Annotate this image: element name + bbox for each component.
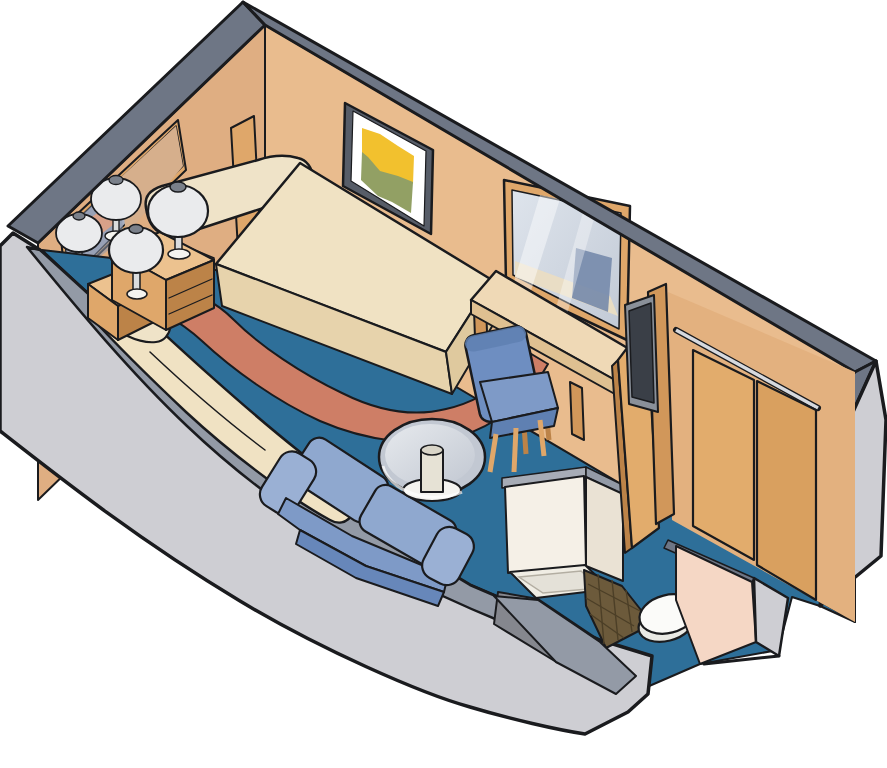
lamp-base [127, 289, 147, 299]
table-pedestal [421, 450, 443, 492]
tv-screen [629, 303, 654, 403]
chair-leg [514, 428, 516, 472]
lamp-shade [148, 185, 208, 237]
television [625, 295, 658, 412]
stateroom-floorplan-illustration [0, 0, 887, 768]
lamp-cap [170, 182, 186, 192]
shower-wall-left [505, 476, 586, 573]
closet-sliding-door [757, 381, 816, 600]
lamp-reflection-cap [109, 176, 123, 185]
lamp-reflection-cap [73, 212, 85, 220]
shower-wall-right [586, 477, 623, 581]
lamp-cap [129, 225, 143, 234]
desk-leg [570, 382, 584, 440]
table-pedestal-top [421, 445, 443, 455]
stateroom-scene [0, 0, 887, 768]
closet-sliding-door [693, 350, 754, 560]
lamp-base [168, 249, 190, 259]
